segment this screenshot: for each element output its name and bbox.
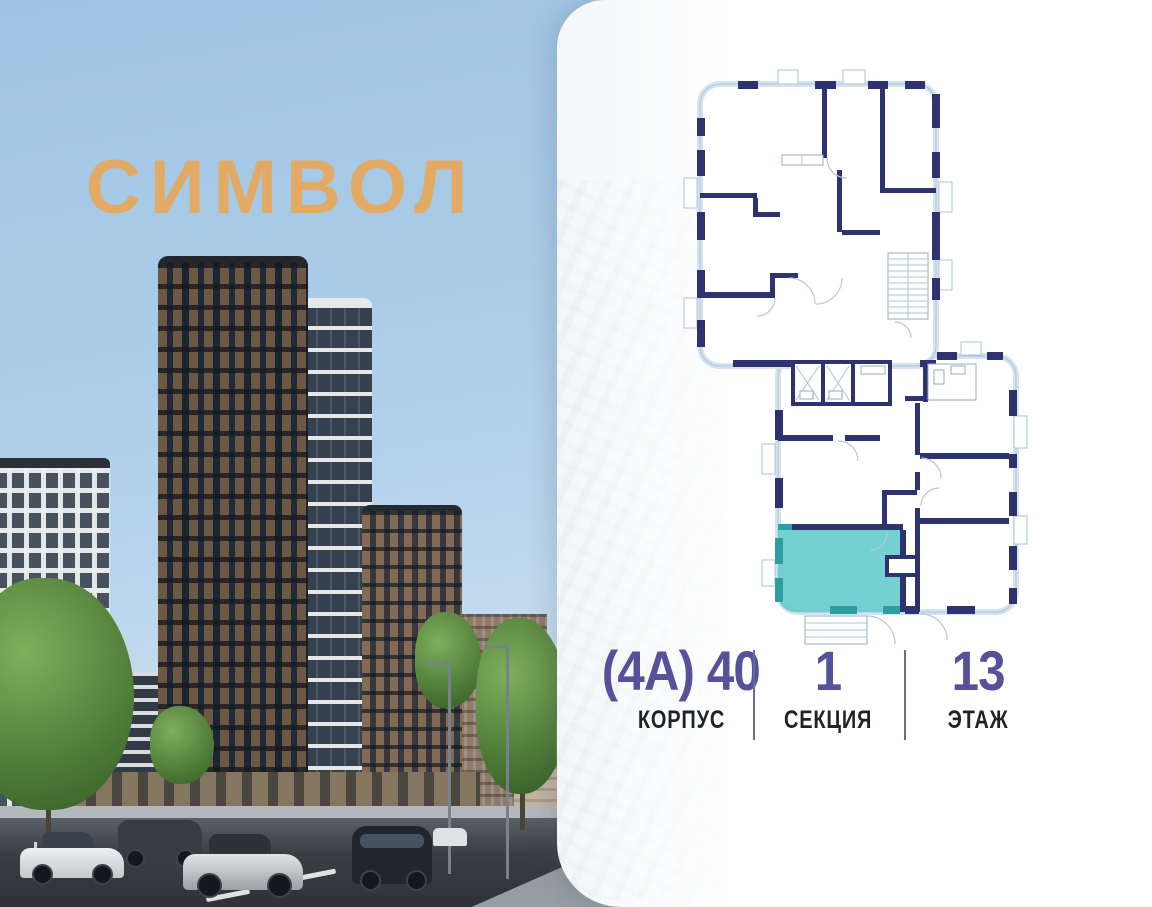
building-value: (4А) 40 (602, 640, 760, 702)
bathroom (928, 364, 976, 400)
building-label: КОРПУС (637, 706, 724, 735)
apartment-highlight[interactable] (778, 528, 903, 612)
section-label: СЕКЦИЯ (784, 706, 872, 735)
floor-label: ЭТАЖ (948, 706, 1009, 735)
wardrobe (782, 155, 823, 165)
tree-small (150, 706, 214, 784)
car-white-sedan (20, 832, 124, 878)
car-small-white (433, 828, 467, 846)
brand-logo: СИМВОЛ (86, 150, 506, 226)
balcony-box (887, 557, 917, 575)
street-lamp-arm (484, 645, 508, 648)
floor-plan (655, 60, 1055, 650)
street-lamp-arm (426, 662, 450, 665)
section-value: 1 (815, 640, 842, 702)
elevator-core (793, 362, 890, 404)
info-floor: 13 ЭТАЖ (888, 640, 1068, 735)
floor-value: 13 (951, 640, 1004, 702)
stairwell (888, 253, 928, 319)
car-dark-minivan (352, 826, 432, 884)
street-lamp (506, 645, 509, 879)
car-silver-sedan (183, 834, 303, 890)
detail-panel: (4А) 40 КОРПУС 1 СЕКЦИЯ 13 ЭТАЖ (557, 0, 1152, 907)
